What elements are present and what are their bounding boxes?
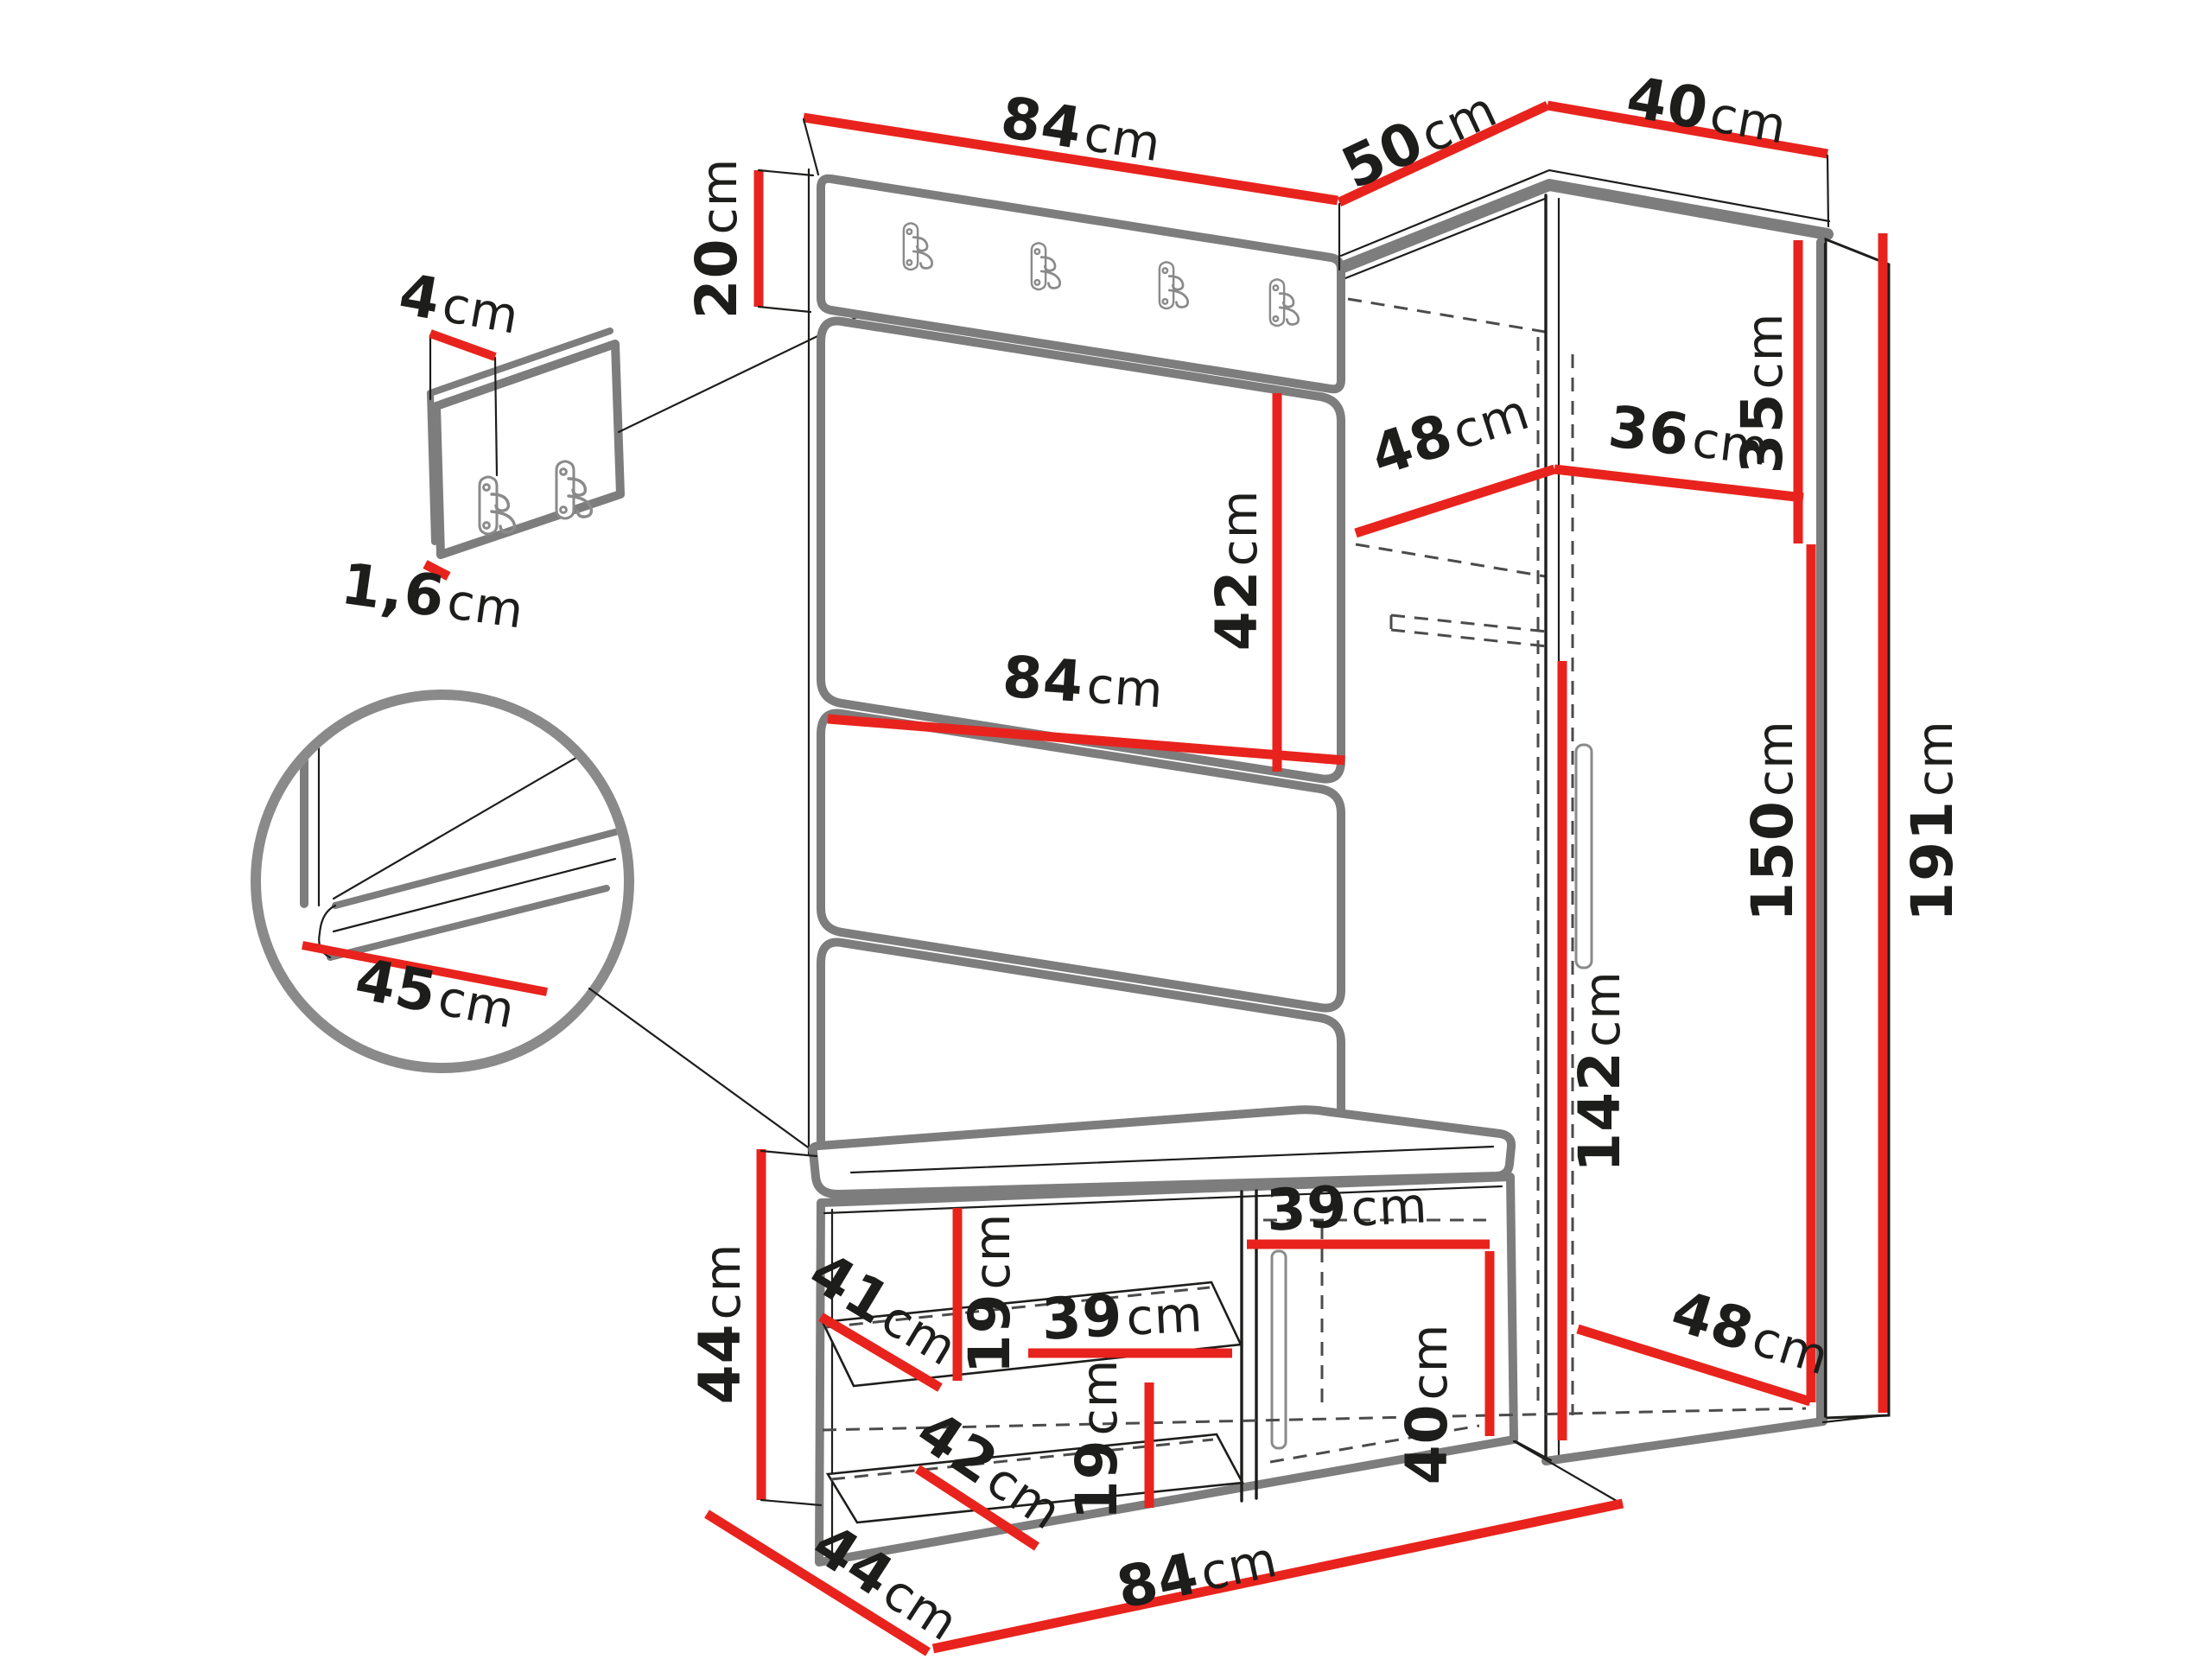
dimension-label-compartment-height-35: 35cm — [1729, 313, 1796, 474]
seat-corner-detail-circle: 45cm — [256, 691, 810, 1149]
dimension-label-door-height-40: 40cm — [1394, 1324, 1460, 1485]
dimension-label-shelf-depth-48: 48cm — [1363, 376, 1536, 489]
plate-front-face — [436, 344, 620, 555]
detail-leader-line — [589, 988, 810, 1149]
dimension-label-corner-depth-50: 50cm — [1332, 73, 1507, 202]
dimension-label-bench-height-44: 44cm — [687, 1243, 753, 1405]
dimension-label-opening-lower-19: 19cm — [1064, 1359, 1130, 1521]
dimension-label-bench-width-84: 84cm — [1111, 1523, 1283, 1622]
bench-door-handle — [1272, 1251, 1286, 1448]
dimension-label-total-height-191: 191cm — [1899, 720, 1966, 922]
hidden-shelf-edge — [1356, 544, 1550, 577]
dimension-label-top-width-84: 84cm — [996, 84, 1166, 175]
furniture-dimension-diagram: 45cm 4cm 1,6cm — [0, 0, 2212, 1659]
dimension-label-plate-width-4: 4cm — [394, 261, 524, 347]
hidden-ceiling-edge — [1348, 299, 1545, 332]
dimension-label-opening-upper-19: 19cm — [957, 1213, 1023, 1375]
dimension-label-hook-panel-height-20: 20cm — [683, 158, 750, 320]
diagram-page: 45cm 4cm 1,6cm — [0, 0, 2212, 1659]
dimension-label-corner-width-40: 40cm — [1622, 64, 1792, 157]
dimension-label-panel-height-42: 42cm — [1204, 490, 1270, 652]
dimension-label-plate-thickness-16: 1,6cm — [337, 550, 528, 642]
dimension-label-interior-height-150: 150cm — [1739, 720, 1806, 922]
dimension-label-hanging-height-142: 142cm — [1567, 970, 1633, 1173]
wardrobe-door-handle — [1576, 745, 1592, 968]
